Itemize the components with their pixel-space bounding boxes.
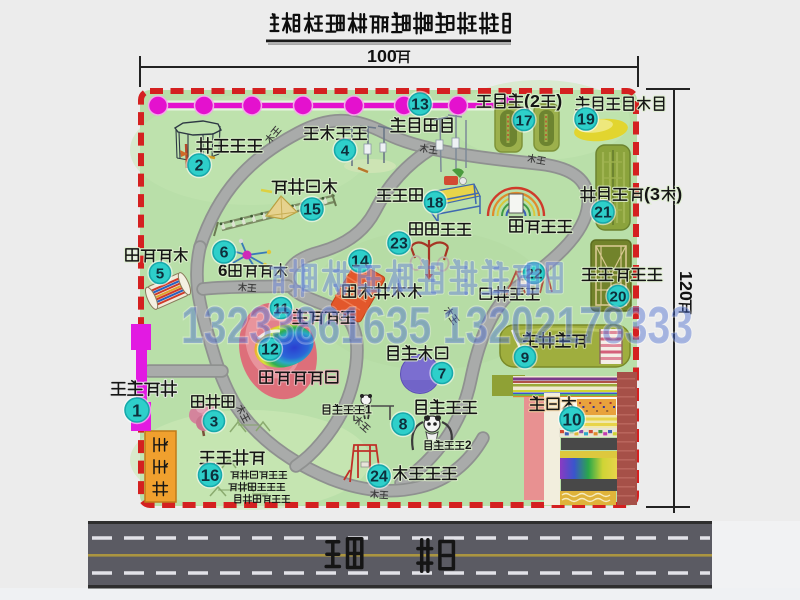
svg-text:): ) — [676, 184, 682, 204]
svg-text:): ) — [556, 91, 562, 111]
svg-text:5: 5 — [156, 266, 165, 283]
svg-text:(3: (3 — [644, 184, 660, 204]
svg-text:21: 21 — [594, 205, 612, 222]
svg-text:24: 24 — [370, 469, 388, 486]
svg-text:7: 7 — [438, 366, 446, 383]
svg-text:23: 23 — [390, 236, 408, 253]
svg-text:1: 1 — [132, 400, 142, 420]
svg-text:13: 13 — [411, 97, 429, 114]
svg-text:3: 3 — [210, 414, 218, 431]
svg-text:15: 15 — [303, 202, 321, 219]
svg-text:19: 19 — [577, 112, 595, 129]
svg-text:13233861635 13202178333: 13233861635 13202178333 — [181, 297, 693, 355]
svg-text:2: 2 — [465, 438, 472, 452]
svg-text:18: 18 — [427, 195, 444, 212]
svg-text:1: 1 — [365, 403, 372, 417]
svg-text:2: 2 — [195, 158, 204, 175]
svg-text:16: 16 — [201, 466, 220, 485]
svg-text:8: 8 — [399, 417, 408, 434]
svg-text:17: 17 — [516, 113, 533, 130]
svg-text:4: 4 — [341, 143, 350, 160]
svg-text:6: 6 — [220, 245, 229, 262]
svg-text:10: 10 — [562, 409, 581, 429]
svg-text:100: 100 — [367, 46, 397, 66]
